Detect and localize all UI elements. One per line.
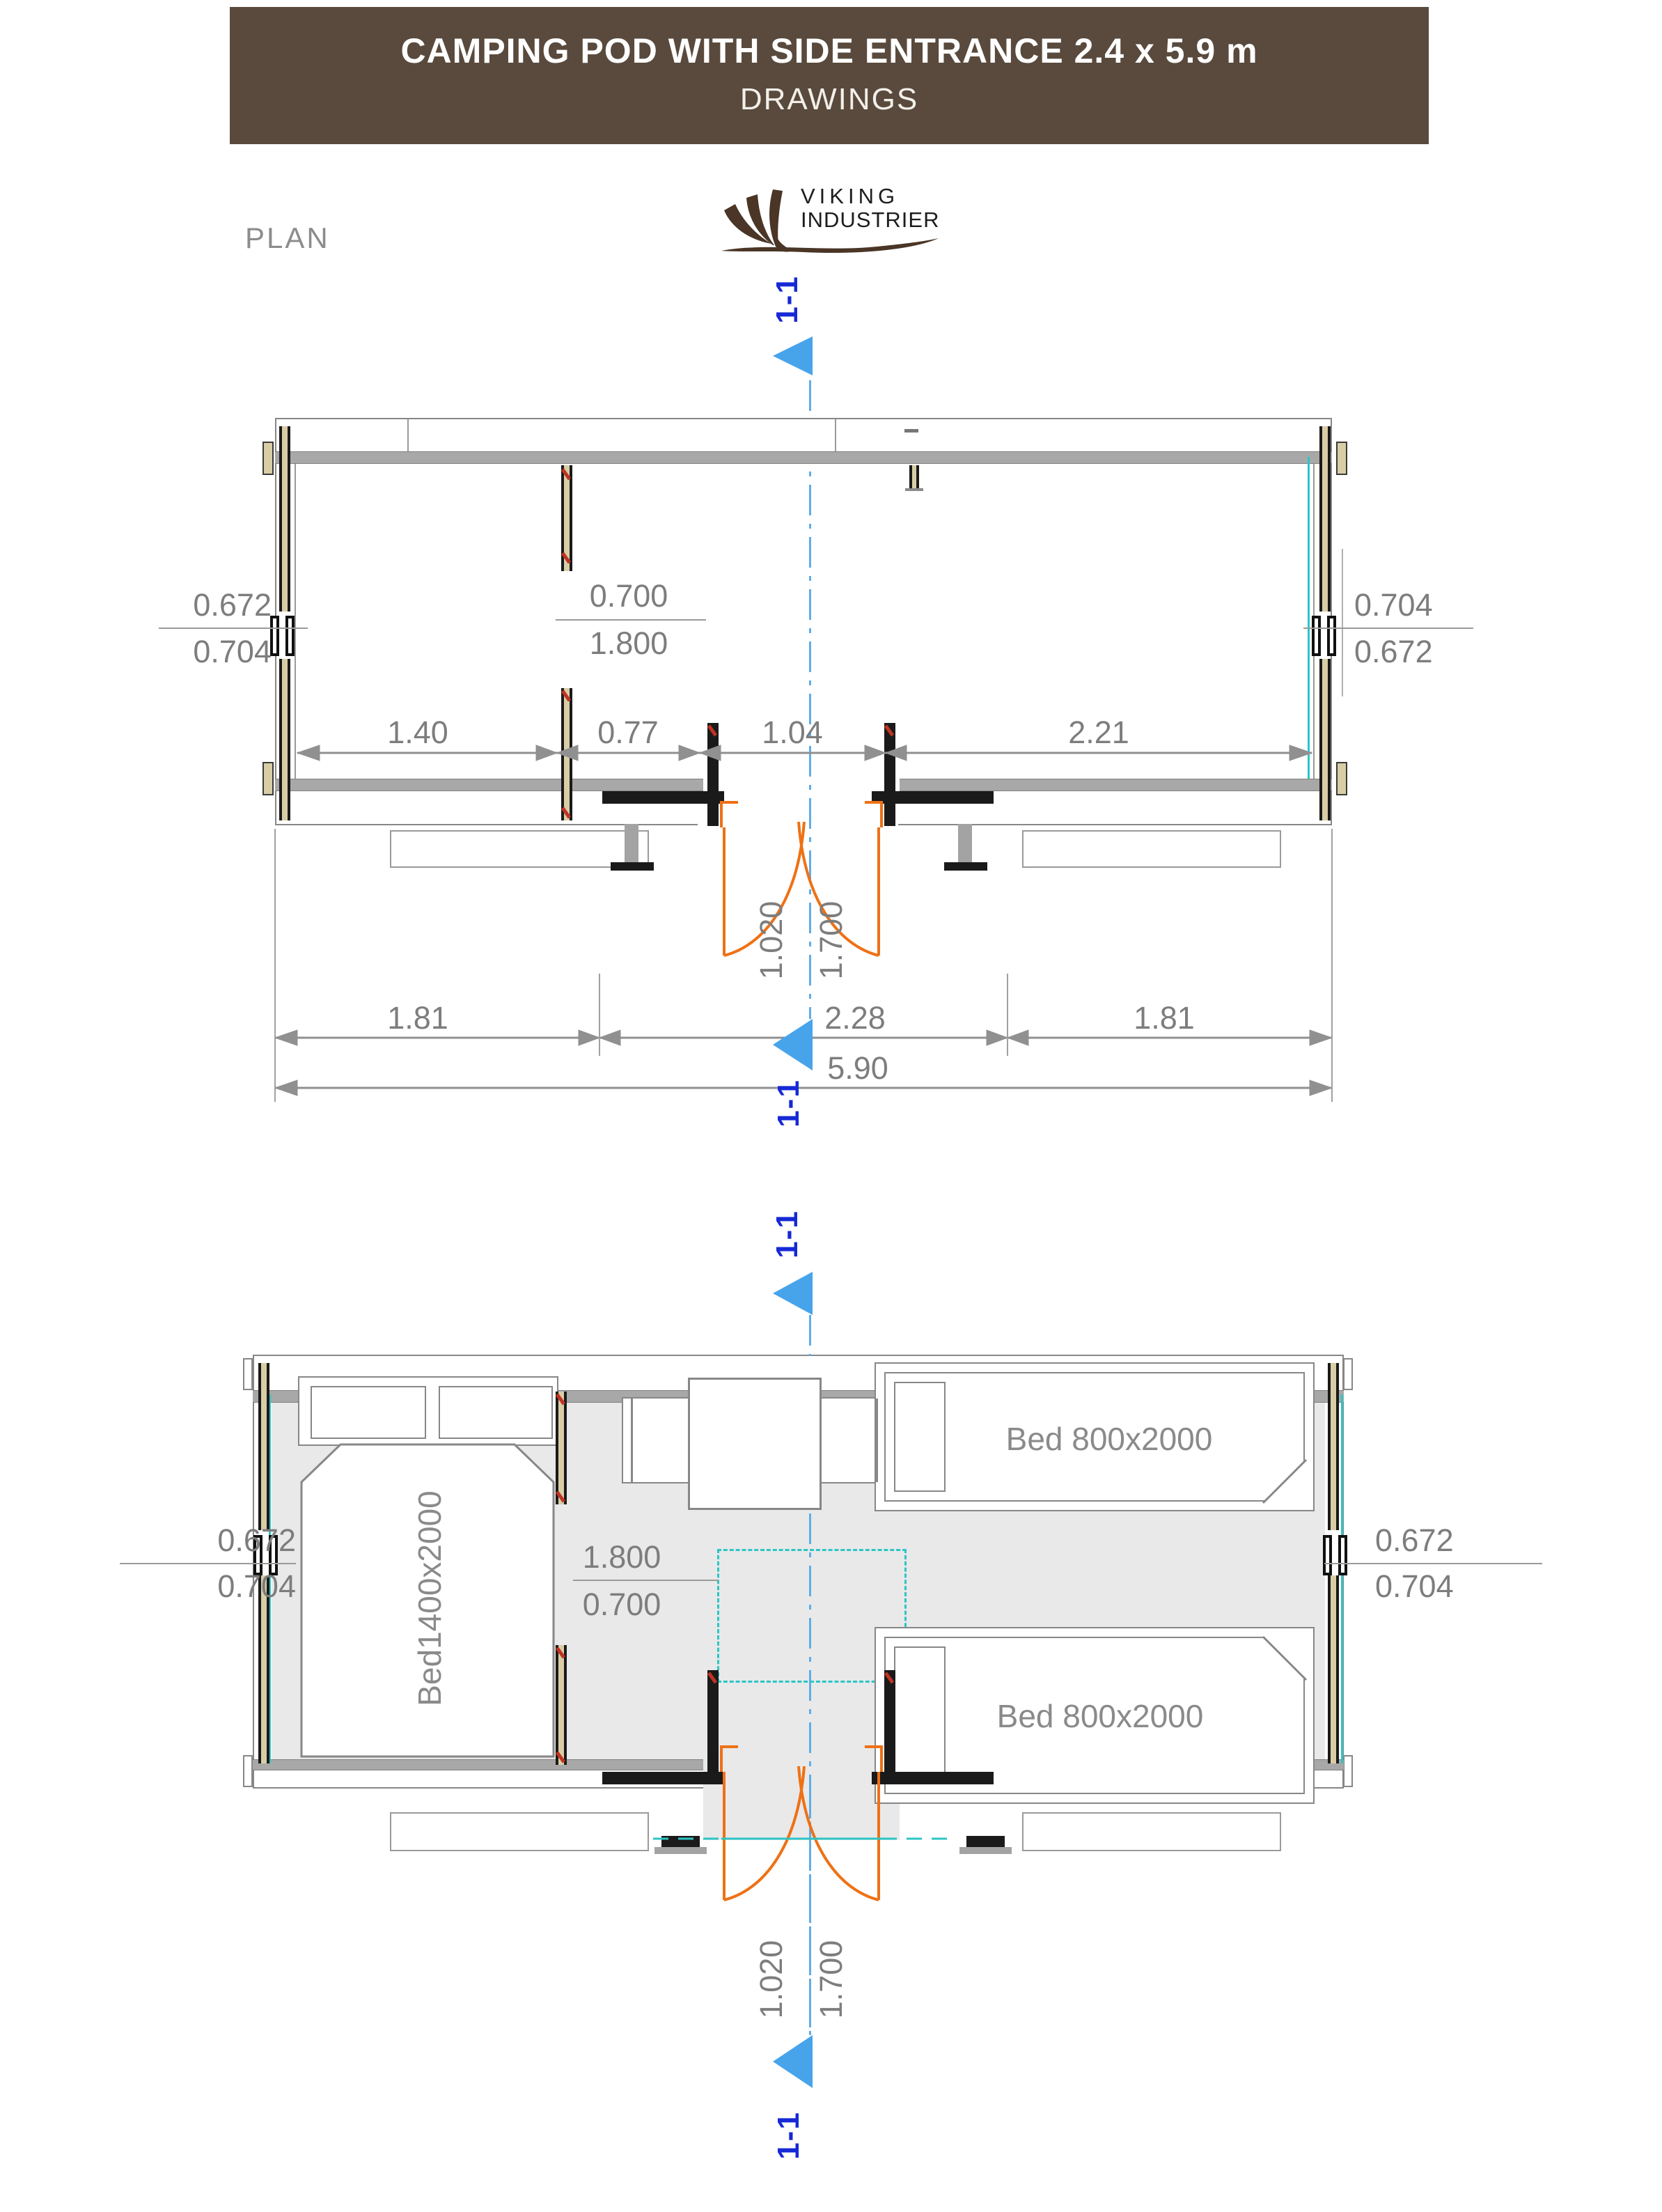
corner-post [243,1755,253,1787]
entrance-step [1022,1812,1281,1851]
dim-left-bottom: 0.704 [120,1568,296,1605]
section-marker-label: 1-1 [770,275,805,324]
viking-industrier-logo: VIKING INDUSTRIER [717,176,947,263]
dim-right-top: 0.704 [1354,587,1433,623]
drawing-overlay [0,0,1662,2212]
short-stud [909,465,919,489]
side-window-glass [1341,1394,1343,1763]
wall-vent-icon [1323,1535,1332,1575]
sheet-subtitle: DRAWINGS [230,82,1429,117]
top-band-divider [835,419,836,451]
wall-stud [258,1363,269,1530]
top-plan-bottom-beam-left [275,779,703,791]
door-width-dim: 1.020 [753,901,790,980]
porch-foot [611,862,654,871]
dim-segment: 1.40 [387,715,448,751]
porch-foot-base [654,1847,707,1854]
corner-post [1343,1358,1353,1390]
wall-vent-icon [1327,616,1336,656]
dim-divider [1324,1563,1542,1564]
bench-back [631,1399,633,1482]
top-plan-top-beam [275,451,1332,464]
dim-right-bottom: 0.704 [1375,1568,1454,1605]
plan-label: PLAN [245,221,330,255]
section-arrow-icon [773,336,813,375]
porch-foot-base [959,1847,1012,1854]
side-window-glass [1308,457,1310,779]
dim-middle-bottom: 1.800 [590,625,668,662]
logo-swoosh [721,238,939,253]
section-centerline [809,380,811,1019]
door-height-dim: 1.700 [813,901,849,980]
pillow [439,1386,553,1439]
wall-stud [1328,1363,1339,1530]
dim-bottom-segment: 2.28 [824,1000,886,1036]
sheet-title: CAMPING POD WITH SIDE ENTRANCE 2.4 x 5.9… [230,31,1429,71]
pillow [311,1386,426,1439]
logo-text-line2: INDUSTRIER [801,208,939,232]
corner-pad [1336,762,1347,795]
corner-post [243,1358,253,1390]
partition-stud [561,688,572,820]
porch-foot [661,1836,700,1847]
dim-middle-top: 0.700 [590,578,668,614]
dim-divider [120,1563,296,1564]
entrance-step [390,1812,649,1851]
section-marker-label: 1-1 [771,1079,806,1128]
door-threshold [602,791,724,804]
corner-pad [262,442,274,475]
door-threshold [872,1772,994,1784]
porch-foot [944,862,987,871]
dim-divider [1303,628,1473,629]
section-centerline [809,1783,811,2035]
dim-bottom-segment: 1.81 [387,1000,448,1036]
partition-stud [556,1392,567,1504]
wall-stud [1319,659,1331,820]
roof-tick [904,429,918,433]
dim-segment: 2.21 [1068,715,1129,751]
dim-right-top: 0.672 [1375,1522,1454,1559]
wall-stud [1319,426,1331,612]
porch-floor [703,1770,900,1840]
door-width-dim: 1.020 [753,1940,790,2019]
door-swing [721,802,881,956]
dim-middle-top: 1.800 [583,1539,661,1575]
top-plan-left-inner-face [295,453,296,780]
entrance-step [1022,830,1281,868]
double-bed-label: Bed1400x2000 [411,1490,448,1706]
top-plan-outline [275,418,1332,825]
drawing-sheet: CAMPING POD WITH SIDE ENTRANCE 2.4 x 5.9… [0,0,1662,2212]
partition-stud [556,1645,567,1765]
wall-vent-icon [1338,1535,1347,1575]
dim-segment: 0.77 [597,715,659,751]
dim-segment: 1.04 [762,715,823,751]
single-bed-bottom-label: Bed 800x2000 [997,1697,1204,1735]
dim-right-bottom: 0.672 [1354,634,1433,670]
wall-stud [279,426,290,612]
corner-pad [262,762,274,795]
door-threshold [872,791,994,804]
door-jamb [707,1670,719,1772]
section-marker-label: 1-1 [771,2111,806,2160]
dim-bottom-segment: 1.81 [1134,1000,1195,1036]
dim-divider [556,619,706,621]
dim-extension-line [1342,549,1343,696]
title-banner: CAMPING POD WITH SIDE ENTRANCE 2.4 x 5.9… [230,7,1429,144]
door-jamb [884,723,895,826]
wall-stud [279,659,290,820]
pillow [894,1646,946,1784]
section-arrow-icon [773,1272,813,1315]
section-centerline [809,1315,811,1357]
bench-back [876,1399,878,1482]
dim-left-bottom: 0.704 [166,634,272,670]
wall-stud [1328,1575,1339,1763]
section-arrow-icon [773,2035,813,2088]
door-jamb [884,1670,895,1772]
table [688,1378,822,1510]
wall-vent-icon [1312,616,1321,656]
corner-pad [1336,442,1347,475]
dim-divider [159,628,308,629]
dim-left-top: 0.672 [120,1522,296,1559]
top-plan-bottom-beam-right [900,779,1332,791]
corner-post [1343,1755,1353,1787]
bottom-plan-bottom-beam-left [253,1759,703,1770]
section-arrow-icon [773,1019,813,1070]
single-bed-top-label: Bed 800x2000 [1006,1420,1213,1458]
top-plan-top-band [276,419,1331,451]
short-stud-cap [905,488,923,491]
logo-text-line1: VIKING [801,184,899,208]
door-gap-cover [698,794,898,825]
dim-divider [573,1580,719,1581]
porch-foot [966,1836,1005,1847]
pillow [894,1382,946,1492]
door-jamb [707,723,719,826]
door-height-dim: 1.700 [813,1940,849,2019]
partition-stud [561,465,572,571]
dim-left-top: 0.672 [166,587,272,623]
top-band-divider [407,419,409,451]
door-threshold [602,1772,724,1784]
section-marker-label: 1-1 [770,1210,805,1259]
dim-middle-bottom: 0.700 [583,1587,661,1623]
wall-vent-icon [285,616,295,656]
dim-total-length: 5.90 [827,1050,888,1086]
